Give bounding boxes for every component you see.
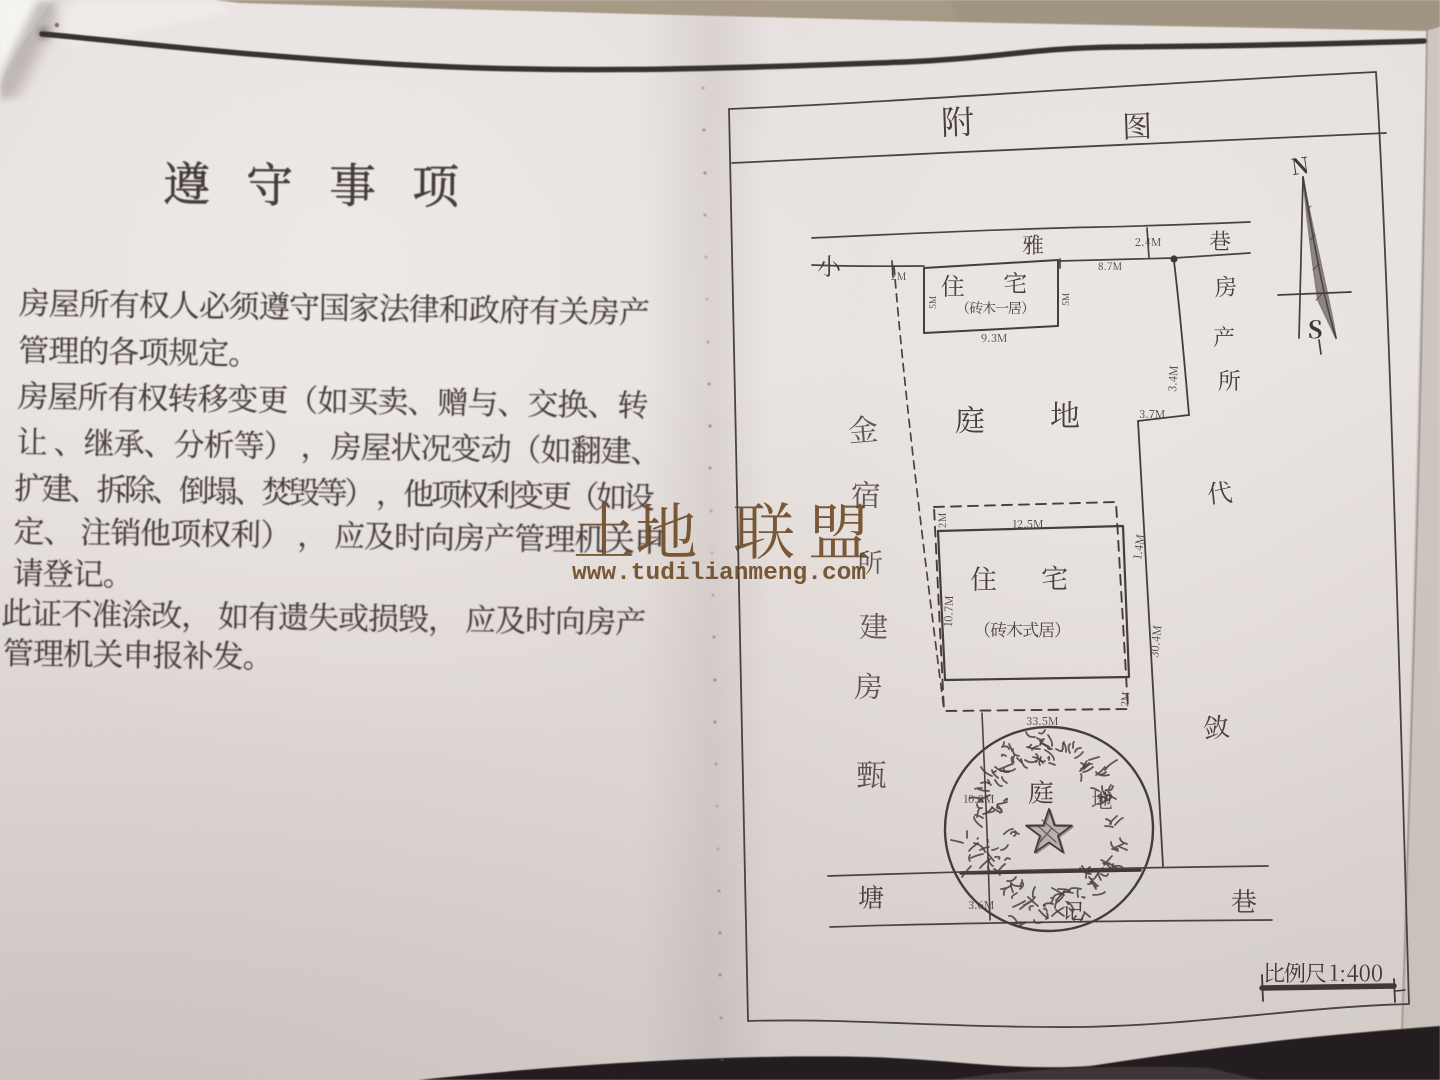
svg-text:住: 住 bbox=[941, 267, 965, 302]
svg-text:3.4M: 3.4M bbox=[1164, 363, 1182, 392]
svg-text:附: 附 bbox=[940, 96, 975, 144]
svg-text:10.7M: 10.7M bbox=[940, 594, 957, 627]
svg-text:8.7M: 8.7M bbox=[1098, 258, 1122, 273]
svg-text:所: 所 bbox=[1218, 363, 1241, 396]
svg-text:房: 房 bbox=[854, 665, 883, 706]
svg-text:30.4M: 30.4M bbox=[1146, 623, 1165, 658]
svg-text:建: 建 bbox=[859, 605, 888, 646]
svg-text:2.4M: 2.4M bbox=[1135, 234, 1163, 250]
svg-text:金: 金 bbox=[846, 405, 880, 451]
svg-text:（砖木式居）: （砖木式居） bbox=[974, 616, 1070, 641]
svg-text:宿: 宿 bbox=[851, 471, 881, 515]
svg-text:住: 住 bbox=[970, 558, 997, 597]
svg-text:敛: 敛 bbox=[1201, 707, 1231, 747]
svg-text:2M: 2M bbox=[891, 268, 906, 283]
svg-text:比例尺: 比例尺 bbox=[1263, 957, 1326, 988]
svg-text:所: 所 bbox=[857, 543, 883, 580]
svg-text:9.3M: 9.3M bbox=[981, 330, 1009, 346]
svg-text:（砖木一居）: （砖木一居） bbox=[956, 298, 1034, 318]
svg-text:N: N bbox=[1289, 149, 1311, 182]
svg-text:3.7M: 3.7M bbox=[1139, 406, 1167, 422]
svg-text:巷: 巷 bbox=[1231, 882, 1257, 919]
svg-text:雅: 雅 bbox=[1022, 229, 1044, 260]
svg-text:宅: 宅 bbox=[1041, 557, 1068, 596]
svg-text:塘: 塘 bbox=[858, 878, 884, 915]
svg-text:5M: 5M bbox=[1059, 292, 1072, 306]
svg-text:产: 产 bbox=[1213, 321, 1235, 352]
svg-text:地: 地 bbox=[1050, 391, 1080, 435]
svg-text:2M: 2M bbox=[1116, 691, 1132, 708]
svg-text:房: 房 bbox=[1213, 268, 1238, 303]
svg-text:S: S bbox=[1308, 310, 1322, 345]
svg-text:2M: 2M bbox=[934, 513, 949, 528]
svg-text:庭: 庭 bbox=[1028, 773, 1054, 810]
svg-text:巷: 巷 bbox=[1209, 225, 1231, 256]
svg-text:代: 代 bbox=[1205, 473, 1234, 511]
svg-text:宅: 宅 bbox=[1003, 264, 1027, 299]
svg-text:5M: 5M bbox=[926, 295, 939, 309]
svg-text:庭: 庭 bbox=[955, 396, 985, 440]
svg-text:1:400: 1:400 bbox=[1329, 957, 1383, 988]
svg-text:小: 小 bbox=[817, 247, 841, 282]
svg-text:甄: 甄 bbox=[856, 750, 887, 795]
svg-text:图: 图 bbox=[1121, 101, 1153, 146]
svg-text:12.5M: 12.5M bbox=[1012, 516, 1045, 532]
